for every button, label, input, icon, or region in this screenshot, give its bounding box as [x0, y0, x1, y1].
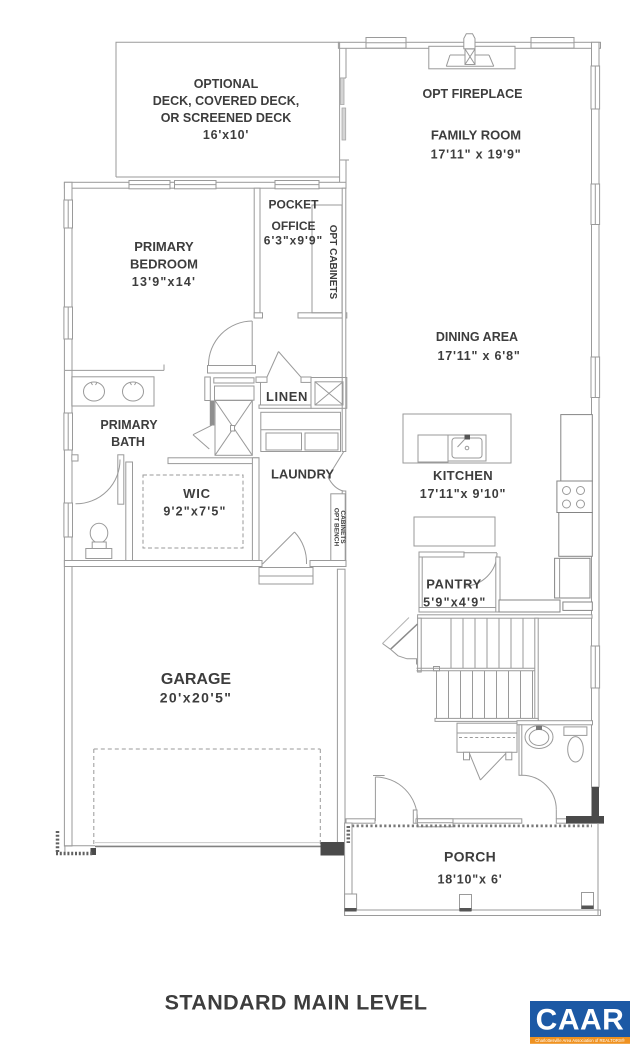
svg-text:FAMILY ROOM: FAMILY ROOM	[431, 128, 521, 143]
svg-text:STANDARD MAIN LEVEL: STANDARD MAIN LEVEL	[165, 991, 428, 1015]
svg-text:13'9"x14': 13'9"x14'	[132, 275, 196, 289]
svg-text:PRIMARY: PRIMARY	[100, 418, 158, 432]
svg-text:17'11" x 6'8": 17'11" x 6'8"	[437, 349, 520, 363]
svg-text:BEDROOM: BEDROOM	[130, 257, 198, 272]
svg-text:PORCH: PORCH	[444, 849, 496, 865]
svg-text:17'11"x 9'10": 17'11"x 9'10"	[420, 487, 507, 501]
svg-text:OPT CABINETS: OPT CABINETS	[327, 225, 338, 300]
svg-text:CAAR: CAAR	[536, 1004, 625, 1037]
svg-text:OPT FIREPLACE: OPT FIREPLACE	[422, 87, 522, 101]
svg-text:OR SCREENED DECK: OR SCREENED DECK	[161, 111, 292, 125]
svg-text:PANTRY: PANTRY	[426, 577, 482, 592]
svg-text:DINING AREA: DINING AREA	[436, 330, 518, 344]
svg-text:WIC: WIC	[183, 486, 211, 501]
svg-text:9'2"x7'5": 9'2"x7'5"	[163, 505, 226, 519]
svg-text:CABINETS: CABINETS	[339, 510, 346, 544]
svg-text:20'x20'5": 20'x20'5"	[160, 690, 233, 706]
svg-text:Charlottesville Area Associati: Charlottesville Area Association of REAL…	[535, 1038, 625, 1043]
svg-text:17'11" x 19'9": 17'11" x 19'9"	[431, 148, 522, 162]
svg-text:DECK, COVERED DECK,: DECK, COVERED DECK,	[153, 94, 300, 108]
svg-text:OPT BENCH: OPT BENCH	[333, 508, 340, 547]
svg-text:GARAGE: GARAGE	[161, 671, 232, 688]
svg-text:BATH: BATH	[111, 435, 145, 449]
svg-text:6'3"x9'9": 6'3"x9'9"	[264, 234, 323, 248]
svg-text:OFFICE: OFFICE	[272, 219, 316, 233]
svg-text:POCKET: POCKET	[268, 198, 319, 212]
svg-text:KITCHEN: KITCHEN	[433, 468, 493, 483]
svg-text:LAUNDRY: LAUNDRY	[271, 467, 334, 482]
svg-text:18'10"x 6': 18'10"x 6'	[437, 873, 502, 887]
svg-text:OPTIONAL: OPTIONAL	[194, 77, 259, 91]
svg-text:LINEN: LINEN	[266, 389, 308, 404]
svg-text:PRIMARY: PRIMARY	[134, 239, 194, 254]
svg-text:16'x10': 16'x10'	[203, 128, 249, 142]
svg-text:5'9"x4'9": 5'9"x4'9"	[423, 596, 486, 610]
